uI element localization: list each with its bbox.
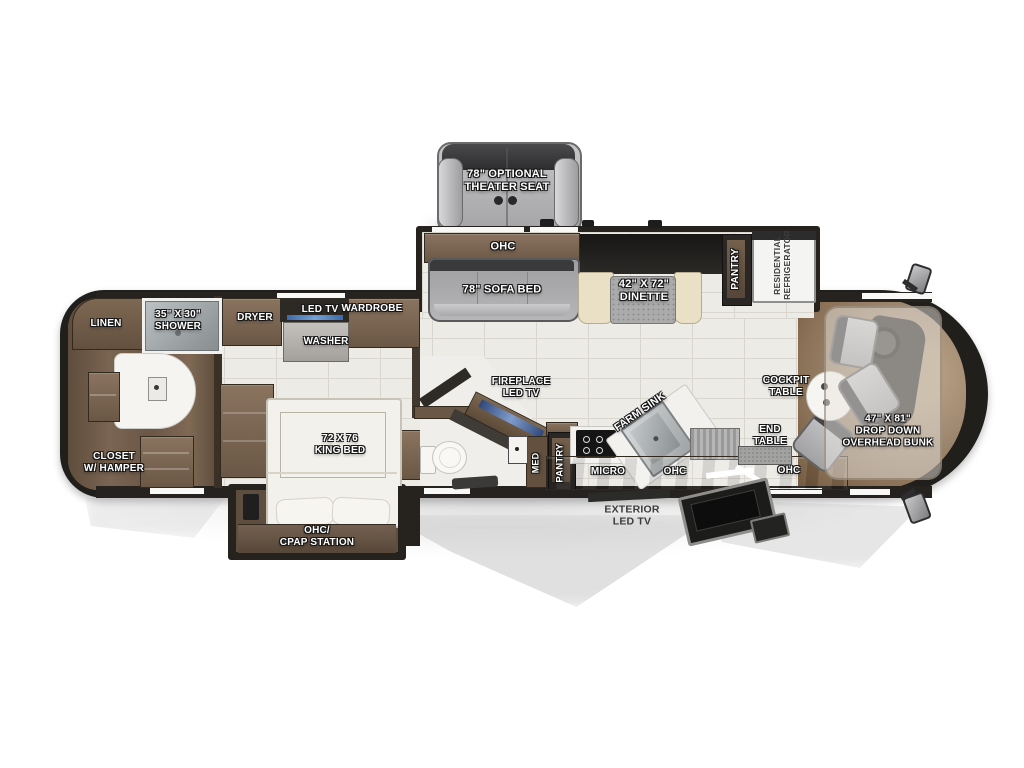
label-ohc-kitchen: OHC (664, 466, 687, 478)
label-sofa-bed: 78" SOFA BED (463, 284, 542, 297)
label-ohc-cpap: OHC/ CPAP STATION (280, 525, 354, 549)
end-table (738, 446, 792, 465)
window-bottom-bath (424, 488, 470, 494)
floorplan-canvas: 78" OPTIONAL THEATER SEAT OHC 78" SOFA B… (0, 0, 1024, 768)
theater-seat-cupholder-right (508, 196, 517, 205)
window-bottom-rear (150, 488, 204, 494)
dresser-line-2 (223, 440, 269, 442)
bed-pillow-left (275, 497, 334, 528)
theater-seat-armrest-left (438, 158, 463, 228)
bath-faucet-dot (154, 385, 159, 390)
theater-seat-armrest-right (554, 158, 579, 228)
marker-light-3 (648, 220, 662, 228)
slideout-window-2 (530, 227, 578, 232)
marker-light-1 (540, 219, 554, 227)
rear-drawers-left (88, 372, 120, 422)
label-washer: WASHER (303, 336, 348, 348)
label-fireplace: FIREPLACE LED TV (492, 376, 550, 400)
label-pantry-slide: PANTRY (730, 248, 742, 289)
bed-pillow-right (331, 497, 390, 528)
label-closet-hamper: CLOSET W/ HAMPER (84, 451, 144, 475)
label-ohc-sofa: OHC (490, 241, 515, 254)
label-micro: MICRO (591, 466, 625, 478)
drop-down-bunk-outline (824, 306, 942, 480)
label-cockpit-table: COCKPIT TABLE (763, 375, 809, 399)
dinette-bench-right (674, 272, 702, 324)
dresser-line-1 (223, 412, 269, 414)
king-bed-fold-line (267, 472, 397, 474)
label-linen: LINEN (91, 318, 122, 330)
cooktop-burner-2 (596, 436, 603, 443)
label-overhead-bunk: 47" X 81" DROP DOWN OVERHEAD BUNK (843, 413, 934, 448)
label-pantry-kitchen: PANTRY (554, 443, 565, 482)
toilet-seat (439, 447, 461, 468)
closet-drawers (140, 436, 194, 488)
dinette-bench-left (578, 272, 614, 324)
label-med: MED (531, 453, 542, 474)
window-bottom-front (850, 489, 890, 495)
dinette-window-band (578, 234, 722, 274)
slideout-side-stub (398, 486, 420, 546)
theater-seat-cupholder-left (494, 196, 503, 205)
cooktop-burner-1 (583, 436, 590, 443)
label-exterior-tv: EXTERIOR LED TV (604, 504, 659, 529)
label-refrigerator: RESIDENTIAL REFRIGERATOR (772, 230, 792, 300)
label-wardrobe: WARDROBE (341, 303, 402, 315)
label-end-table: END TABLE (753, 424, 787, 448)
label-theater-seat: 78" OPTIONAL THEATER SEAT (464, 168, 549, 194)
marker-light-2 (582, 220, 594, 227)
label-led-tv: LED TV (302, 304, 339, 316)
slideout-speaker (243, 494, 259, 520)
label-shower: 35" X 30" SHOWER (155, 309, 201, 333)
ground-shadow-center (385, 515, 715, 607)
sofa-front-lip (434, 304, 570, 316)
mirror-top (904, 262, 933, 295)
label-dryer: DRYER (237, 312, 273, 324)
closet-drawer-line-1 (143, 452, 189, 454)
bedroom-nightstand (400, 430, 422, 480)
cooktop-burner-3 (583, 447, 590, 454)
rear-drawers-left-line (90, 394, 116, 396)
label-ohc-living: OHC (778, 465, 801, 477)
closet-drawer-line-2 (143, 468, 189, 470)
slideout-window-1 (432, 227, 524, 232)
label-king-bed: 72 X 76 KING BED (315, 433, 366, 457)
med-cabinet-door-knob (515, 447, 519, 451)
sofa-bed-backrest (430, 260, 574, 271)
label-dinette: 42" X 72" DINETTE (619, 278, 669, 304)
cooktop-burner-4 (596, 447, 603, 454)
